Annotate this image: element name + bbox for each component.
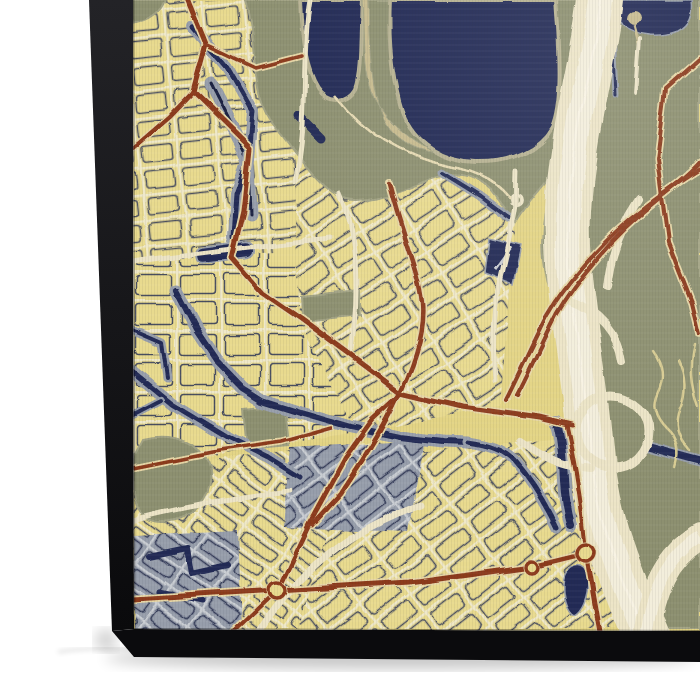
product-photo-stage	[0, 0, 700, 700]
canvas-side-left	[89, 0, 134, 631]
canvas-map-print	[0, 0, 700, 700]
canvas-texture-overlay	[133, 0, 700, 631]
canvas-side-bottom	[112, 629, 700, 662]
